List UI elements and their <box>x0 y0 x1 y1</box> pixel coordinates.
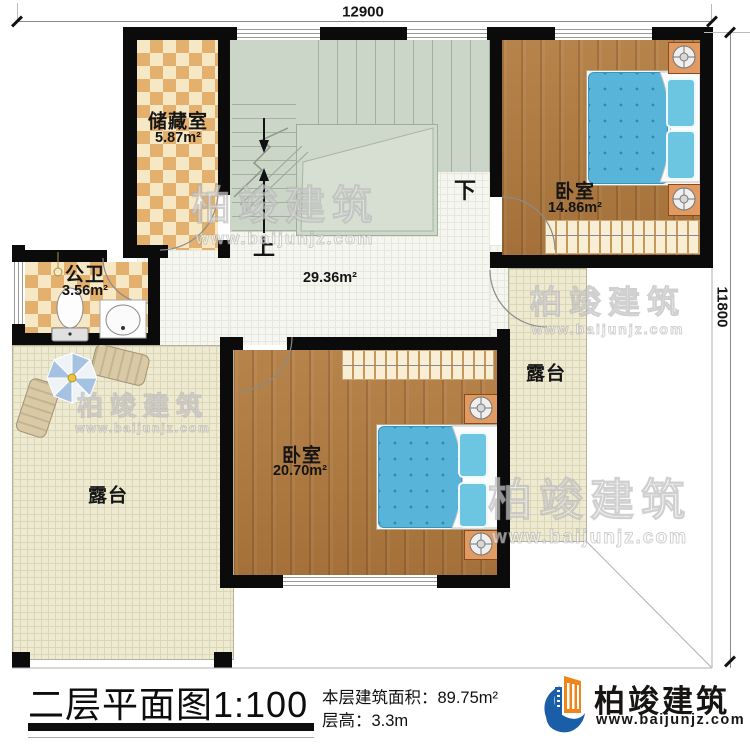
bedroom1-pillow-2 <box>666 130 696 180</box>
logo-website: www.baijunjz.com <box>596 712 745 728</box>
wall-bathroom-bottom <box>12 333 160 345</box>
wall-bedroom1-bottom <box>497 255 713 268</box>
floor-plan-page: 12900 11800 储藏室 5.87m² 公卫 3.56m² 卧室 14.8… <box>0 0 750 745</box>
window-top-1 <box>237 27 320 40</box>
bedroom2-pillow-2 <box>458 482 488 528</box>
plan-info: 本层建筑面积：89.75m² 层高：3.3m <box>322 687 498 733</box>
wall-bedroom2-top <box>287 337 510 350</box>
stair-up-label: 上 <box>253 230 275 262</box>
bedroom1-wardrobe <box>545 220 702 254</box>
wall-bedroom2-left <box>220 337 233 588</box>
stair-landing <box>296 124 438 236</box>
terrace-right-floor <box>508 268 587 542</box>
bedroom2-area: 20.70m² <box>273 463 327 479</box>
logo-icon <box>538 671 590 737</box>
terrace-post-right <box>214 652 232 668</box>
bedroom2-wardrobe <box>342 350 494 380</box>
wall-bedroom2-top-stub <box>233 337 243 350</box>
bedroom1-nightstand-bottom <box>668 184 702 216</box>
bedroom1-pillow-1 <box>666 78 696 128</box>
wall-storage-right <box>218 27 230 195</box>
title-rule-thick <box>28 723 314 731</box>
dimension-right-value: 11800 <box>714 287 731 328</box>
wall-bedroom1-left <box>490 27 502 197</box>
floor-height-label: 层高： <box>322 712 372 730</box>
window-bedroom2 <box>283 575 437 588</box>
bedroom1-bed-mattress <box>588 72 668 184</box>
wall-storage-left <box>123 27 137 258</box>
bedroom1-area: 14.86m² <box>548 200 602 216</box>
floor-height-value: 3.3m <box>372 712 409 730</box>
dimension-line-right <box>730 33 731 668</box>
roof-diagonal <box>585 540 711 667</box>
bedroom2-nightstand-bottom <box>464 530 500 560</box>
terrace-right-label: 露台 <box>526 359 566 386</box>
bedroom2-nightstand-top <box>464 394 500 424</box>
dimension-top-value: 12900 <box>342 4 384 21</box>
wall-bedroom2-right <box>497 329 510 588</box>
terrace-left-label: 露台 <box>88 481 128 508</box>
wall-storage-bottom <box>123 245 168 258</box>
bathroom-area: 3.56m² <box>62 283 108 299</box>
bedroom1-nightstand-top <box>668 42 702 74</box>
floor-area-label: 本层建筑面积： <box>322 689 438 707</box>
wall-storage-right-stub <box>218 240 230 258</box>
floor-height-line: 层高：3.3m <box>322 710 498 733</box>
window-bathroom <box>12 262 25 324</box>
stair-down-label: 下 <box>454 173 476 205</box>
title-rule-thin <box>28 737 314 738</box>
wall-bedroom1-right <box>700 27 713 268</box>
window-top-2 <box>407 27 487 40</box>
window-top-3 <box>555 27 652 40</box>
hallway-area: 29.36m² <box>303 270 357 286</box>
plan-scale: 1:100 <box>213 684 308 725</box>
floor-area-line: 本层建筑面积：89.75m² <box>322 687 498 710</box>
terrace-post-left <box>12 652 30 668</box>
floor-area-value: 89.75m² <box>438 689 499 707</box>
stair-treads-left <box>232 104 296 232</box>
dimension-line-top <box>17 21 713 22</box>
plan-title-text: 二层平面图 <box>28 684 213 725</box>
bedroom2-pillow-1 <box>458 432 488 478</box>
storage-room-area: 5.87m² <box>155 130 201 146</box>
plan-title: 二层平面图1:100 <box>28 676 308 728</box>
wall-bathroom-right <box>148 250 160 345</box>
bedroom2-bed-mattress <box>378 426 462 528</box>
